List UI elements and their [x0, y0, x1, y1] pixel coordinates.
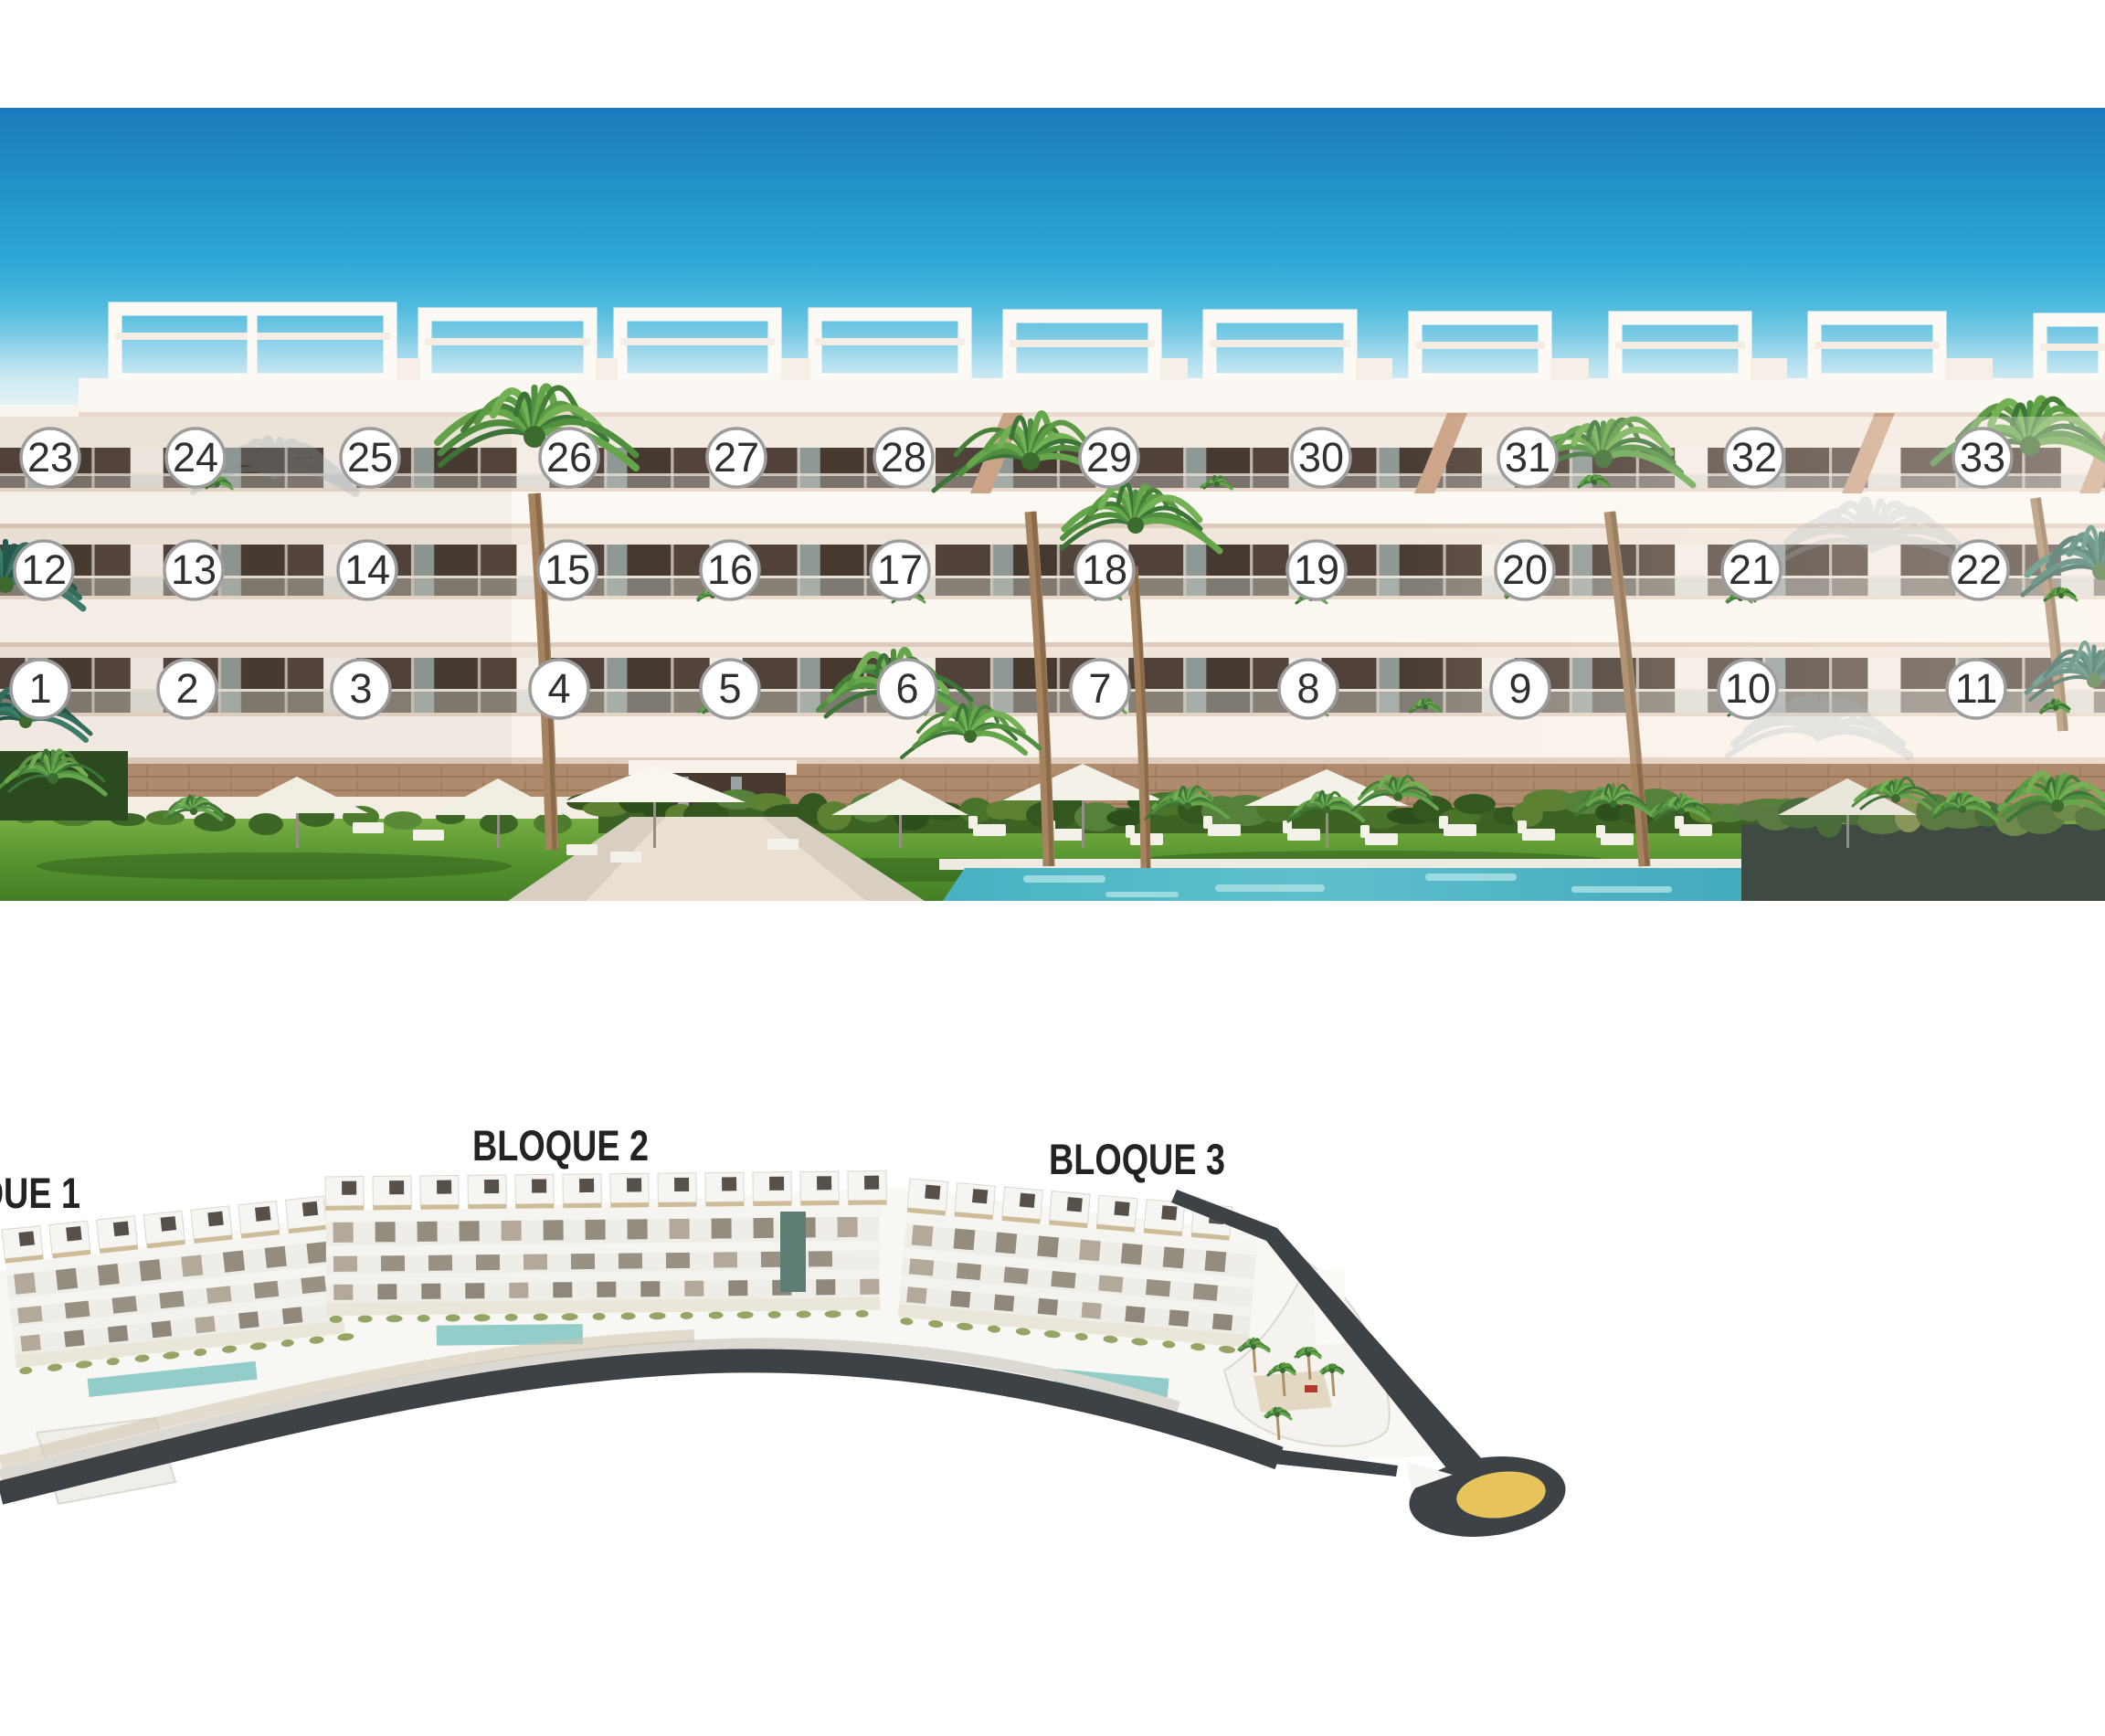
svg-text:33: 33: [1960, 434, 2005, 481]
svg-text:15: 15: [545, 546, 590, 593]
svg-text:25: 25: [347, 434, 393, 481]
svg-text:17: 17: [877, 546, 923, 593]
svg-text:23: 23: [27, 434, 73, 481]
svg-text:30: 30: [1298, 434, 1344, 481]
svg-text:24: 24: [173, 434, 218, 481]
svg-text:26: 26: [546, 434, 592, 481]
svg-text:29: 29: [1086, 434, 1132, 481]
svg-text:6: 6: [895, 665, 918, 712]
svg-text:8: 8: [1296, 665, 1319, 712]
svg-text:11: 11: [1955, 665, 1998, 712]
svg-text:1: 1: [28, 665, 51, 712]
svg-text:2: 2: [175, 665, 198, 712]
svg-text:3: 3: [349, 665, 372, 712]
svg-text:BLOQUE 1: BLOQUE 1: [0, 1169, 80, 1217]
svg-text:9: 9: [1508, 665, 1531, 712]
svg-text:22: 22: [1956, 546, 2002, 593]
svg-text:BLOQUE 3: BLOQUE 3: [1049, 1135, 1225, 1183]
svg-text:12: 12: [21, 546, 67, 593]
svg-text:31: 31: [1505, 434, 1550, 481]
svg-text:14: 14: [344, 546, 390, 593]
svg-text:19: 19: [1294, 546, 1339, 593]
svg-text:5: 5: [718, 665, 741, 712]
svg-text:7: 7: [1088, 665, 1111, 712]
svg-text:32: 32: [1731, 434, 1777, 481]
svg-text:13: 13: [171, 546, 217, 593]
svg-text:BLOQUE 2: BLOQUE 2: [472, 1121, 649, 1170]
svg-text:21: 21: [1729, 546, 1774, 593]
svg-text:20: 20: [1502, 546, 1548, 593]
svg-text:4: 4: [547, 665, 570, 712]
svg-text:27: 27: [714, 434, 759, 481]
svg-text:16: 16: [707, 546, 753, 593]
svg-text:28: 28: [881, 434, 926, 481]
svg-text:10: 10: [1725, 665, 1771, 712]
svg-text:18: 18: [1082, 546, 1127, 593]
